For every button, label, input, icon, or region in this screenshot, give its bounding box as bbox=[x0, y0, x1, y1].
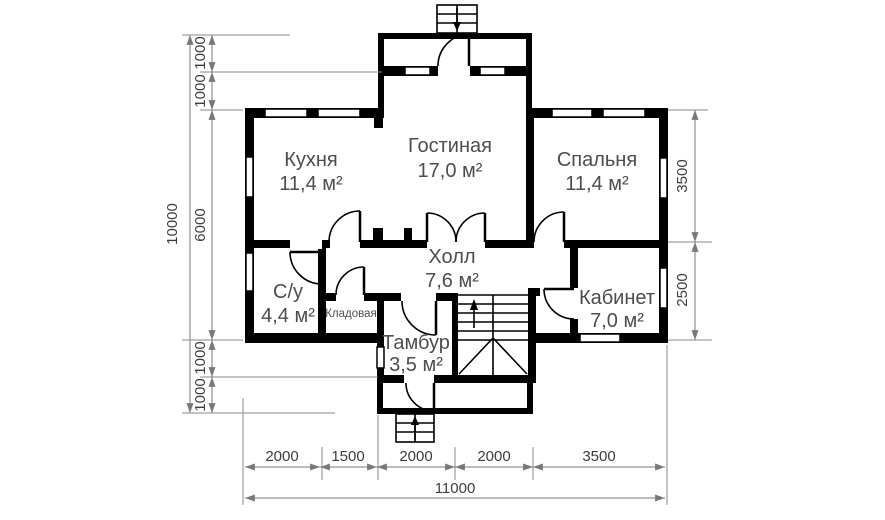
label-living-name: Гостиная bbox=[408, 135, 492, 157]
wall-top-porch-east bbox=[526, 33, 532, 118]
label-study-name: Кабинет bbox=[579, 287, 655, 309]
window-study-east bbox=[660, 268, 667, 308]
floor-plan-drawing: 10000 1000 1000 6000 1000 1000 3500 2500… bbox=[0, 0, 885, 520]
dim-bottom-seg-2: 1500 bbox=[331, 448, 364, 465]
wall-living-nub bbox=[404, 228, 412, 242]
label-bedroom-name: Спальня bbox=[557, 149, 637, 171]
wall-study-west-lower bbox=[570, 318, 578, 333]
label-study-area: 7,0 м² bbox=[590, 310, 644, 332]
window-living-north-2 bbox=[480, 67, 505, 75]
wall-kitchen-living-stub-bottom bbox=[373, 228, 383, 242]
wall-stairs-east bbox=[528, 288, 536, 383]
dim-left-seg-4: 1000 bbox=[192, 341, 209, 374]
exterior-stairs-top bbox=[437, 5, 477, 33]
wall-top-porch-west bbox=[378, 33, 384, 118]
door-arc-kitchen bbox=[329, 211, 360, 242]
window-living-north-1 bbox=[405, 67, 430, 75]
floor-plan-page: 10000 1000 1000 6000 1000 1000 3500 2500… bbox=[0, 0, 885, 520]
door-arc-vestibule-south bbox=[406, 383, 434, 411]
dim-bottom-seg-5: 3500 bbox=[582, 448, 615, 465]
label-hall-name: Холл bbox=[428, 246, 475, 268]
wall-kitchen-living-stub-top bbox=[374, 108, 383, 128]
wall-left bbox=[245, 108, 254, 343]
dim-bottom-seg-1: 2000 bbox=[265, 448, 298, 465]
wall-top-east bbox=[526, 108, 668, 118]
exterior-stairs-bottom bbox=[396, 414, 434, 442]
door-arc-pantry bbox=[336, 267, 364, 295]
label-pantry-name: Кладовая bbox=[325, 308, 377, 320]
walls bbox=[245, 33, 668, 414]
dim-left-seg-3: 6000 bbox=[192, 208, 209, 241]
window-bedroom-north-2 bbox=[603, 109, 645, 117]
dim-left-seg-2: 1000 bbox=[192, 74, 209, 107]
door-arc-bedroom bbox=[534, 212, 564, 242]
label-living-area: 17,0 м² bbox=[418, 160, 483, 182]
label-hall-area: 7,6 м² bbox=[425, 270, 479, 292]
dim-bottom-seg-4: 2000 bbox=[477, 448, 510, 465]
wall-stairs-east-nub bbox=[528, 288, 540, 296]
stair-cut-line bbox=[459, 338, 493, 374]
wall-living-bedroom bbox=[526, 108, 534, 248]
wall-vestibule-east bbox=[452, 293, 458, 383]
dim-left-total: 10000 bbox=[164, 203, 181, 245]
label-kitchen-name: Кухня bbox=[284, 149, 338, 171]
window-kitchen-north-1 bbox=[265, 109, 307, 117]
door-arc-living-left bbox=[427, 213, 456, 242]
wall-bottom-west bbox=[245, 333, 381, 343]
wall-bottom-porch-south bbox=[377, 408, 533, 414]
window-bathroom-west bbox=[246, 253, 253, 291]
interior-staircase bbox=[458, 295, 528, 375]
window-kitchen-west bbox=[246, 157, 253, 197]
wall-vestibule-south bbox=[377, 375, 533, 383]
window-bedroom-east bbox=[660, 158, 667, 198]
dim-bottom-total: 11000 bbox=[435, 480, 476, 497]
door-arc-bathroom bbox=[290, 252, 322, 284]
door-arc-vestibule-north bbox=[402, 301, 436, 335]
dim-right-seg-1: 3500 bbox=[674, 159, 691, 192]
label-bedroom-area: 11,4 м² bbox=[565, 173, 629, 195]
wall-study-west-upper bbox=[570, 248, 578, 288]
window-study-south bbox=[580, 334, 620, 342]
label-vestibule-name: Тамбур bbox=[382, 332, 450, 354]
window-bedroom-north-1 bbox=[552, 109, 592, 117]
wall-bathroom-east bbox=[318, 248, 326, 333]
dim-left-seg-1: 1000 bbox=[192, 36, 209, 69]
dim-right-seg-2: 2500 bbox=[674, 273, 691, 306]
label-vestibule-area: 3,5 м² bbox=[389, 354, 443, 376]
window-kitchen-north-2 bbox=[318, 109, 360, 117]
dim-bottom-seg-3: 2000 bbox=[399, 448, 432, 465]
stair-cut-line bbox=[493, 338, 527, 374]
door-arc-living-right bbox=[456, 213, 485, 242]
dim-left-seg-5: 1000 bbox=[192, 378, 209, 411]
label-bathroom-name: С/у bbox=[273, 281, 303, 303]
label-bathroom-area: 4,4 м² bbox=[261, 305, 315, 327]
label-kitchen-area: 11,4 м² bbox=[279, 173, 343, 195]
